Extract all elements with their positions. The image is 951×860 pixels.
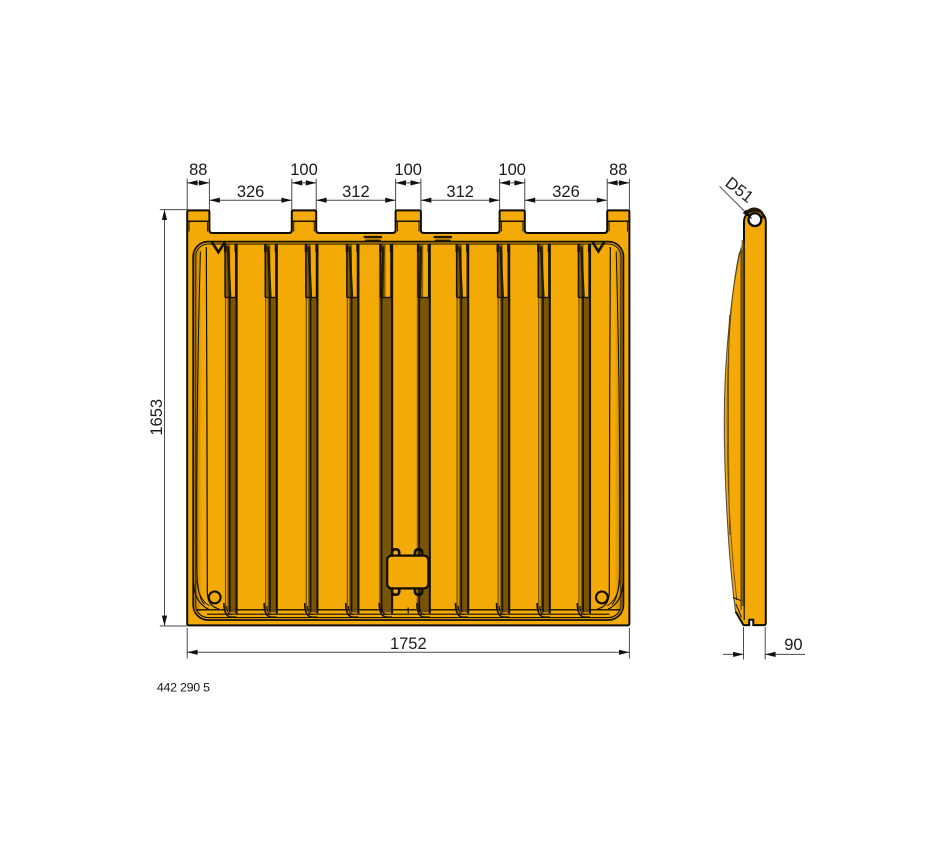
svg-text:100: 100 <box>498 161 526 179</box>
svg-text:312: 312 <box>342 183 370 201</box>
svg-text:88: 88 <box>189 161 207 179</box>
svg-text:326: 326 <box>552 183 580 201</box>
svg-text:1653: 1653 <box>148 399 166 436</box>
svg-text:100: 100 <box>290 161 318 179</box>
svg-text:100: 100 <box>394 161 422 179</box>
svg-text:88: 88 <box>609 161 627 179</box>
svg-text:1752: 1752 <box>390 635 427 653</box>
svg-text:312: 312 <box>446 183 474 201</box>
svg-text:90: 90 <box>784 636 802 654</box>
svg-text:442 290 5: 442 290 5 <box>157 680 210 694</box>
svg-text:326: 326 <box>237 183 265 201</box>
